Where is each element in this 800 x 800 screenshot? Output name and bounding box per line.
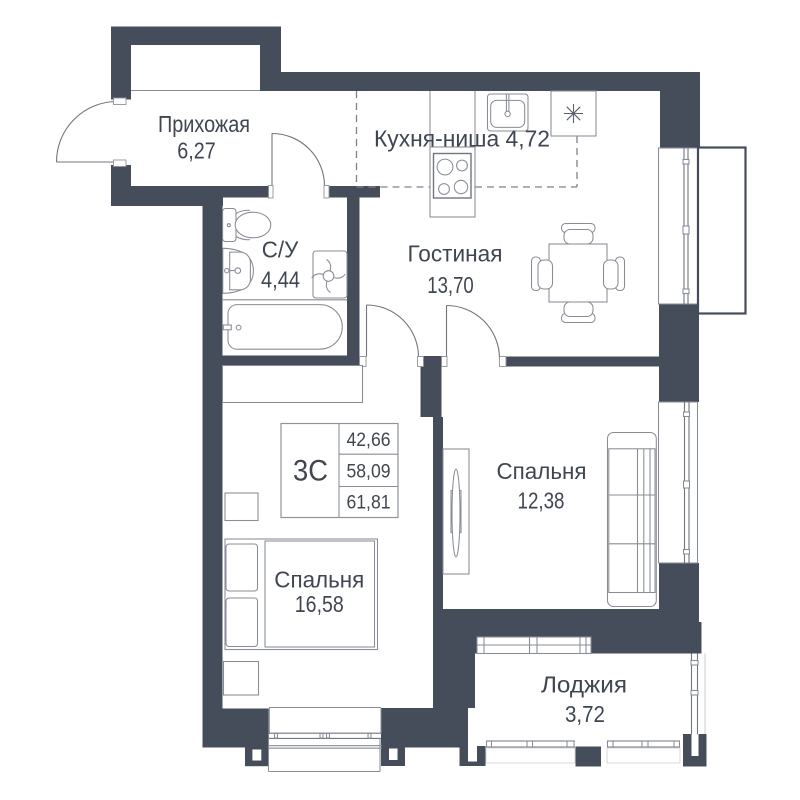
svg-text:Лоджия: Лоджия — [541, 672, 627, 698]
svg-text:Прихожая: Прихожая — [158, 111, 250, 137]
svg-text:Спальня: Спальня — [274, 567, 364, 593]
svg-text:12,38: 12,38 — [518, 488, 565, 514]
svg-text:6,27: 6,27 — [177, 138, 216, 164]
svg-text:13,70: 13,70 — [427, 272, 474, 298]
svg-text:Кухня-ниша 4,72: Кухня-ниша 4,72 — [374, 126, 550, 152]
svg-text:4,44: 4,44 — [261, 267, 300, 293]
svg-text:Спальня: Спальня — [497, 458, 587, 484]
svg-text:С/У: С/У — [262, 237, 300, 263]
svg-text:42,66: 42,66 — [347, 430, 391, 451]
svg-text:3,72: 3,72 — [565, 701, 605, 727]
svg-text:16,58: 16,58 — [295, 591, 344, 617]
svg-text:58,09: 58,09 — [347, 462, 391, 483]
svg-text:61,81: 61,81 — [347, 493, 391, 514]
svg-text:3С: 3С — [293, 455, 328, 488]
svg-text:Гостиная: Гостиная — [408, 241, 503, 267]
